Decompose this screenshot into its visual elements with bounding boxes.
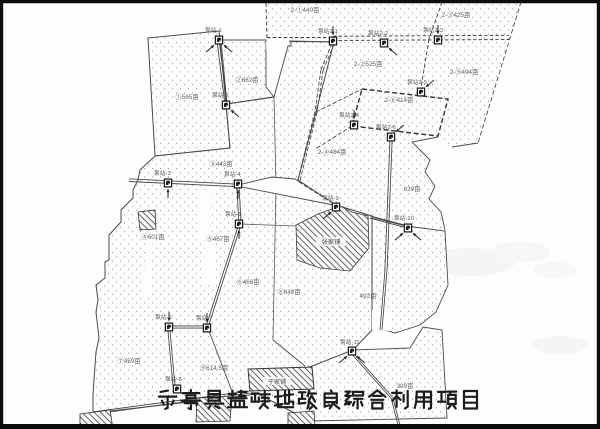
svg-text:399亩: 399亩 [397,381,414,390]
svg-text:639亩: 639亩 [404,184,421,193]
svg-text:泵站-11: 泵站-11 [340,338,360,346]
svg-text:2-③425亩: 2-③425亩 [442,10,471,19]
svg-text:泵站2-4: 泵站2-4 [339,111,360,119]
svg-text:②662亩: ②662亩 [235,75,258,84]
svg-text:泵站-1: 泵站-1 [205,26,222,34]
svg-text:泵站2-3: 泵站2-3 [423,26,443,34]
svg-text:⑧648亩: ⑧648亩 [277,287,300,296]
svg-text:⑤467亩: ⑤467亩 [206,234,229,243]
svg-text:④601亩: ④601亩 [141,232,164,241]
svg-text:2-②525亩: 2-②525亩 [354,59,383,68]
svg-text:张家铺: 张家铺 [322,238,341,246]
svg-text:③443亩: ③443亩 [209,159,232,168]
svg-text:泵站2-2: 泵站2-2 [368,29,388,37]
svg-text:泵站-5: 泵站-5 [225,210,242,218]
svg-text:泵站-10: 泵站-10 [394,214,414,222]
svg-text:2-①440亩: 2-①440亩 [291,5,320,14]
svg-text:泵站2-5: 泵站2-5 [407,78,427,86]
svg-text:泵站-9: 泵站-9 [322,194,339,202]
svg-text:2-⑥414亩: 2-⑥414亩 [385,95,414,104]
svg-text:泵站-7: 泵站-7 [196,314,213,322]
svg-text:2-⑤494亩: 2-⑤494亩 [450,67,479,76]
svg-text:泵站-2: 泵站-2 [212,91,229,99]
svg-text:泵站2-1: 泵站2-1 [318,27,338,35]
svg-text:⑥466亩: ⑥466亩 [236,277,259,286]
svg-text:泵站-8: 泵站-8 [165,375,182,383]
svg-text:⑦459亩: ⑦459亩 [117,356,140,365]
svg-text:于家铺: 于家铺 [268,378,286,386]
svg-text:492亩: 492亩 [360,291,377,300]
svg-text:①565亩: ①565亩 [175,92,198,101]
svg-text:⑨614.5亩: ⑨614.5亩 [200,363,228,372]
svg-text:泵站-4: 泵站-4 [224,170,242,178]
svg-text:泵站-3: 泵站-3 [154,169,171,177]
svg-text:泵站2-6: 泵站2-6 [376,123,396,131]
svg-text:2-④484亩: 2-④484亩 [318,147,347,156]
